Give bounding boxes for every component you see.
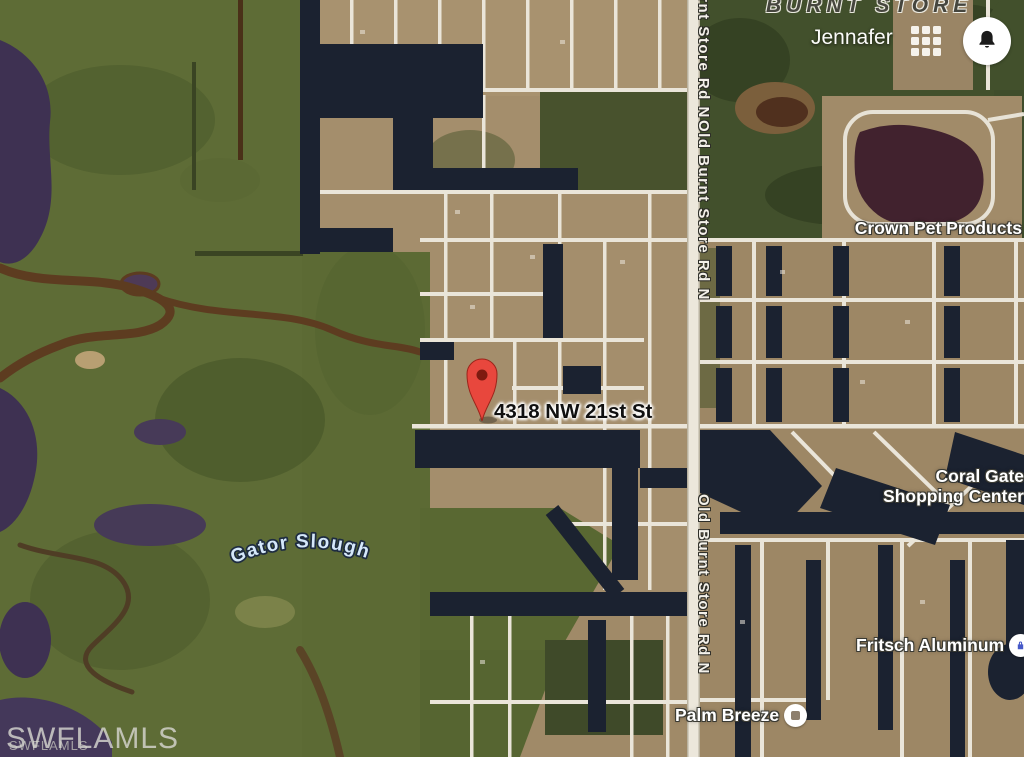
- poi-label-fritsch-aluminum: Fritsch Aluminum: [856, 635, 1004, 656]
- pin-address-label: 4318 NW 21st St: [494, 400, 652, 424]
- road-label-old-burnt-store-rd-n-1: Old Burnt Store Rd N: [695, 0, 712, 119]
- notification-bell-button[interactable]: [963, 17, 1011, 65]
- square-glyph: [791, 711, 800, 720]
- poi-palm-breeze: Palm Breeze: [675, 704, 807, 727]
- poi-label-palm-breeze: Palm Breeze: [675, 705, 779, 726]
- poi-label-crown-pet-products: Crown Pet Products: [855, 218, 1022, 239]
- business-poi-icon[interactable]: [1009, 634, 1024, 657]
- bell-icon: [974, 28, 1000, 54]
- area-label-burnt-store: BURNT STORE: [766, 0, 972, 18]
- satellite-map[interactable]: Gator Slough BURNT STORE Jennafer Old Bu…: [0, 0, 1024, 757]
- blue-business-glyph: [1014, 639, 1024, 652]
- neighborhood-poi-icon[interactable]: [784, 704, 807, 727]
- locality-label-jennafer: Jennafer: [811, 26, 893, 50]
- apps-grid-icon[interactable]: [911, 26, 941, 56]
- road-label-old-burnt-store-rd-n-3: Old Burnt Store Rd N: [695, 494, 712, 675]
- poi-label-coral-gate-shopping-center: Coral Gate Shopping Center: [872, 466, 1024, 506]
- road-label-old-burnt-store-rd-n-2: Old Burnt Store Rd N: [695, 120, 712, 301]
- poi-fritsch-aluminum: Fritsch Aluminum: [856, 634, 1024, 657]
- watermark: SWFLAMLS: [6, 722, 179, 756]
